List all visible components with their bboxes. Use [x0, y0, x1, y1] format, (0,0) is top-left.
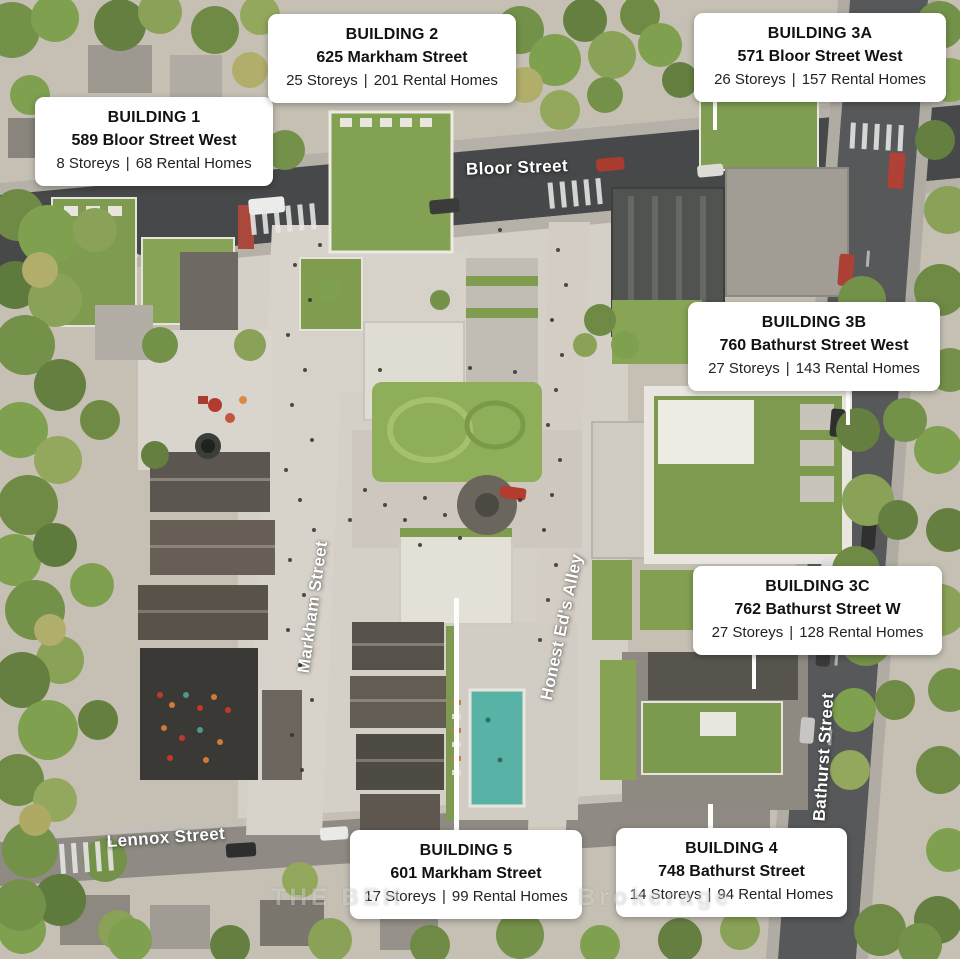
storeys-text: 14 Storeys [630, 886, 702, 903]
stats-separator: | [364, 72, 368, 89]
building-title: BUILDING 1 [41, 108, 267, 128]
callout-building-3a: BUILDING 3A 571 Bloor Street West 26 Sto… [694, 13, 946, 102]
street-label-bloor: Bloor Street [466, 156, 569, 180]
rooftop [170, 55, 222, 99]
homes-text: 143 Rental Homes [796, 360, 920, 377]
building-stats: 27 Storeys|143 Rental Homes [694, 360, 934, 379]
stats-separator: | [442, 888, 446, 905]
stats-separator: | [789, 624, 793, 641]
storeys-text: 25 Storeys [286, 72, 358, 89]
storeys-text: 8 Storeys [56, 155, 119, 172]
homes-text: 128 Rental Homes [799, 624, 923, 641]
building-stats: 26 Storeys|157 Rental Homes [700, 71, 940, 90]
building-stats: 8 Storeys|68 Rental Homes [41, 155, 267, 174]
leader-line-building-3b [846, 387, 850, 425]
building-stats: 17 Storeys|99 Rental Homes [356, 888, 576, 907]
leader-line-building-4 [708, 804, 713, 829]
homes-text: 201 Rental Homes [374, 72, 498, 89]
terrace-green [592, 560, 632, 640]
callout-building-3c: BUILDING 3C 762 Bathurst Street W 27 Sto… [693, 566, 942, 655]
building-address: 760 Bathurst Street West [694, 336, 934, 356]
callout-building-4: BUILDING 4 748 Bathurst Street 14 Storey… [616, 828, 847, 917]
building-stats: 25 Storeys|201 Rental Homes [274, 72, 510, 91]
storeys-text: 27 Storeys [708, 360, 780, 377]
storeys-text: 27 Storeys [712, 624, 784, 641]
site-plan-image: Bloor Street Markham Street Honest Ed's … [0, 0, 960, 959]
building-title: BUILDING 3C [699, 577, 936, 597]
building-address: 571 Bloor Street West [700, 47, 940, 67]
building-stats: 14 Storeys|94 Rental Homes [622, 886, 841, 905]
stats-separator: | [786, 360, 790, 377]
homes-text: 99 Rental Homes [452, 888, 568, 905]
building-address: 748 Bathurst Street [622, 862, 841, 882]
building-title: BUILDING 4 [622, 839, 841, 859]
building-title: BUILDING 5 [356, 841, 576, 861]
storeys-text: 26 Storeys [714, 71, 786, 88]
victorian-houses-east [350, 622, 446, 830]
building-3c-4-block [600, 652, 808, 810]
building-title: BUILDING 2 [274, 25, 510, 45]
homes-text: 157 Rental Homes [802, 71, 926, 88]
building-title: BUILDING 3B [694, 313, 934, 333]
callout-building-1: BUILDING 1 589 Bloor Street West 8 Store… [35, 97, 273, 186]
leader-line-building-3a [713, 98, 717, 130]
rooftop [150, 905, 210, 949]
rooftop [88, 45, 152, 93]
homes-text: 68 Rental Homes [136, 155, 252, 172]
mid-building [592, 422, 648, 558]
storeys-text: 17 Storeys [364, 888, 436, 905]
plaza-circle [457, 475, 517, 535]
stats-separator: | [707, 886, 711, 903]
building-title: BUILDING 3A [700, 24, 940, 44]
callout-building-2: BUILDING 2 625 Markham Street 25 Storeys… [268, 14, 516, 103]
stats-separator: | [126, 155, 130, 172]
building-3b-block [644, 386, 852, 564]
central-lawn [372, 382, 542, 482]
callout-building-3b: BUILDING 3B 760 Bathurst Street West 27 … [688, 302, 940, 391]
building-stats: 27 Storeys|128 Rental Homes [699, 624, 936, 643]
callout-building-5: BUILDING 5 601 Markham Street 17 Storeys… [350, 830, 582, 919]
building-address: 762 Bathurst Street W [699, 600, 936, 620]
building-address: 601 Markham Street [356, 864, 576, 884]
leader-line-building-5 [454, 598, 459, 831]
building-address: 625 Markham Street [274, 48, 510, 68]
stats-separator: | [792, 71, 796, 88]
building-address: 589 Bloor Street West [41, 131, 267, 151]
homes-text: 94 Rental Homes [717, 886, 833, 903]
